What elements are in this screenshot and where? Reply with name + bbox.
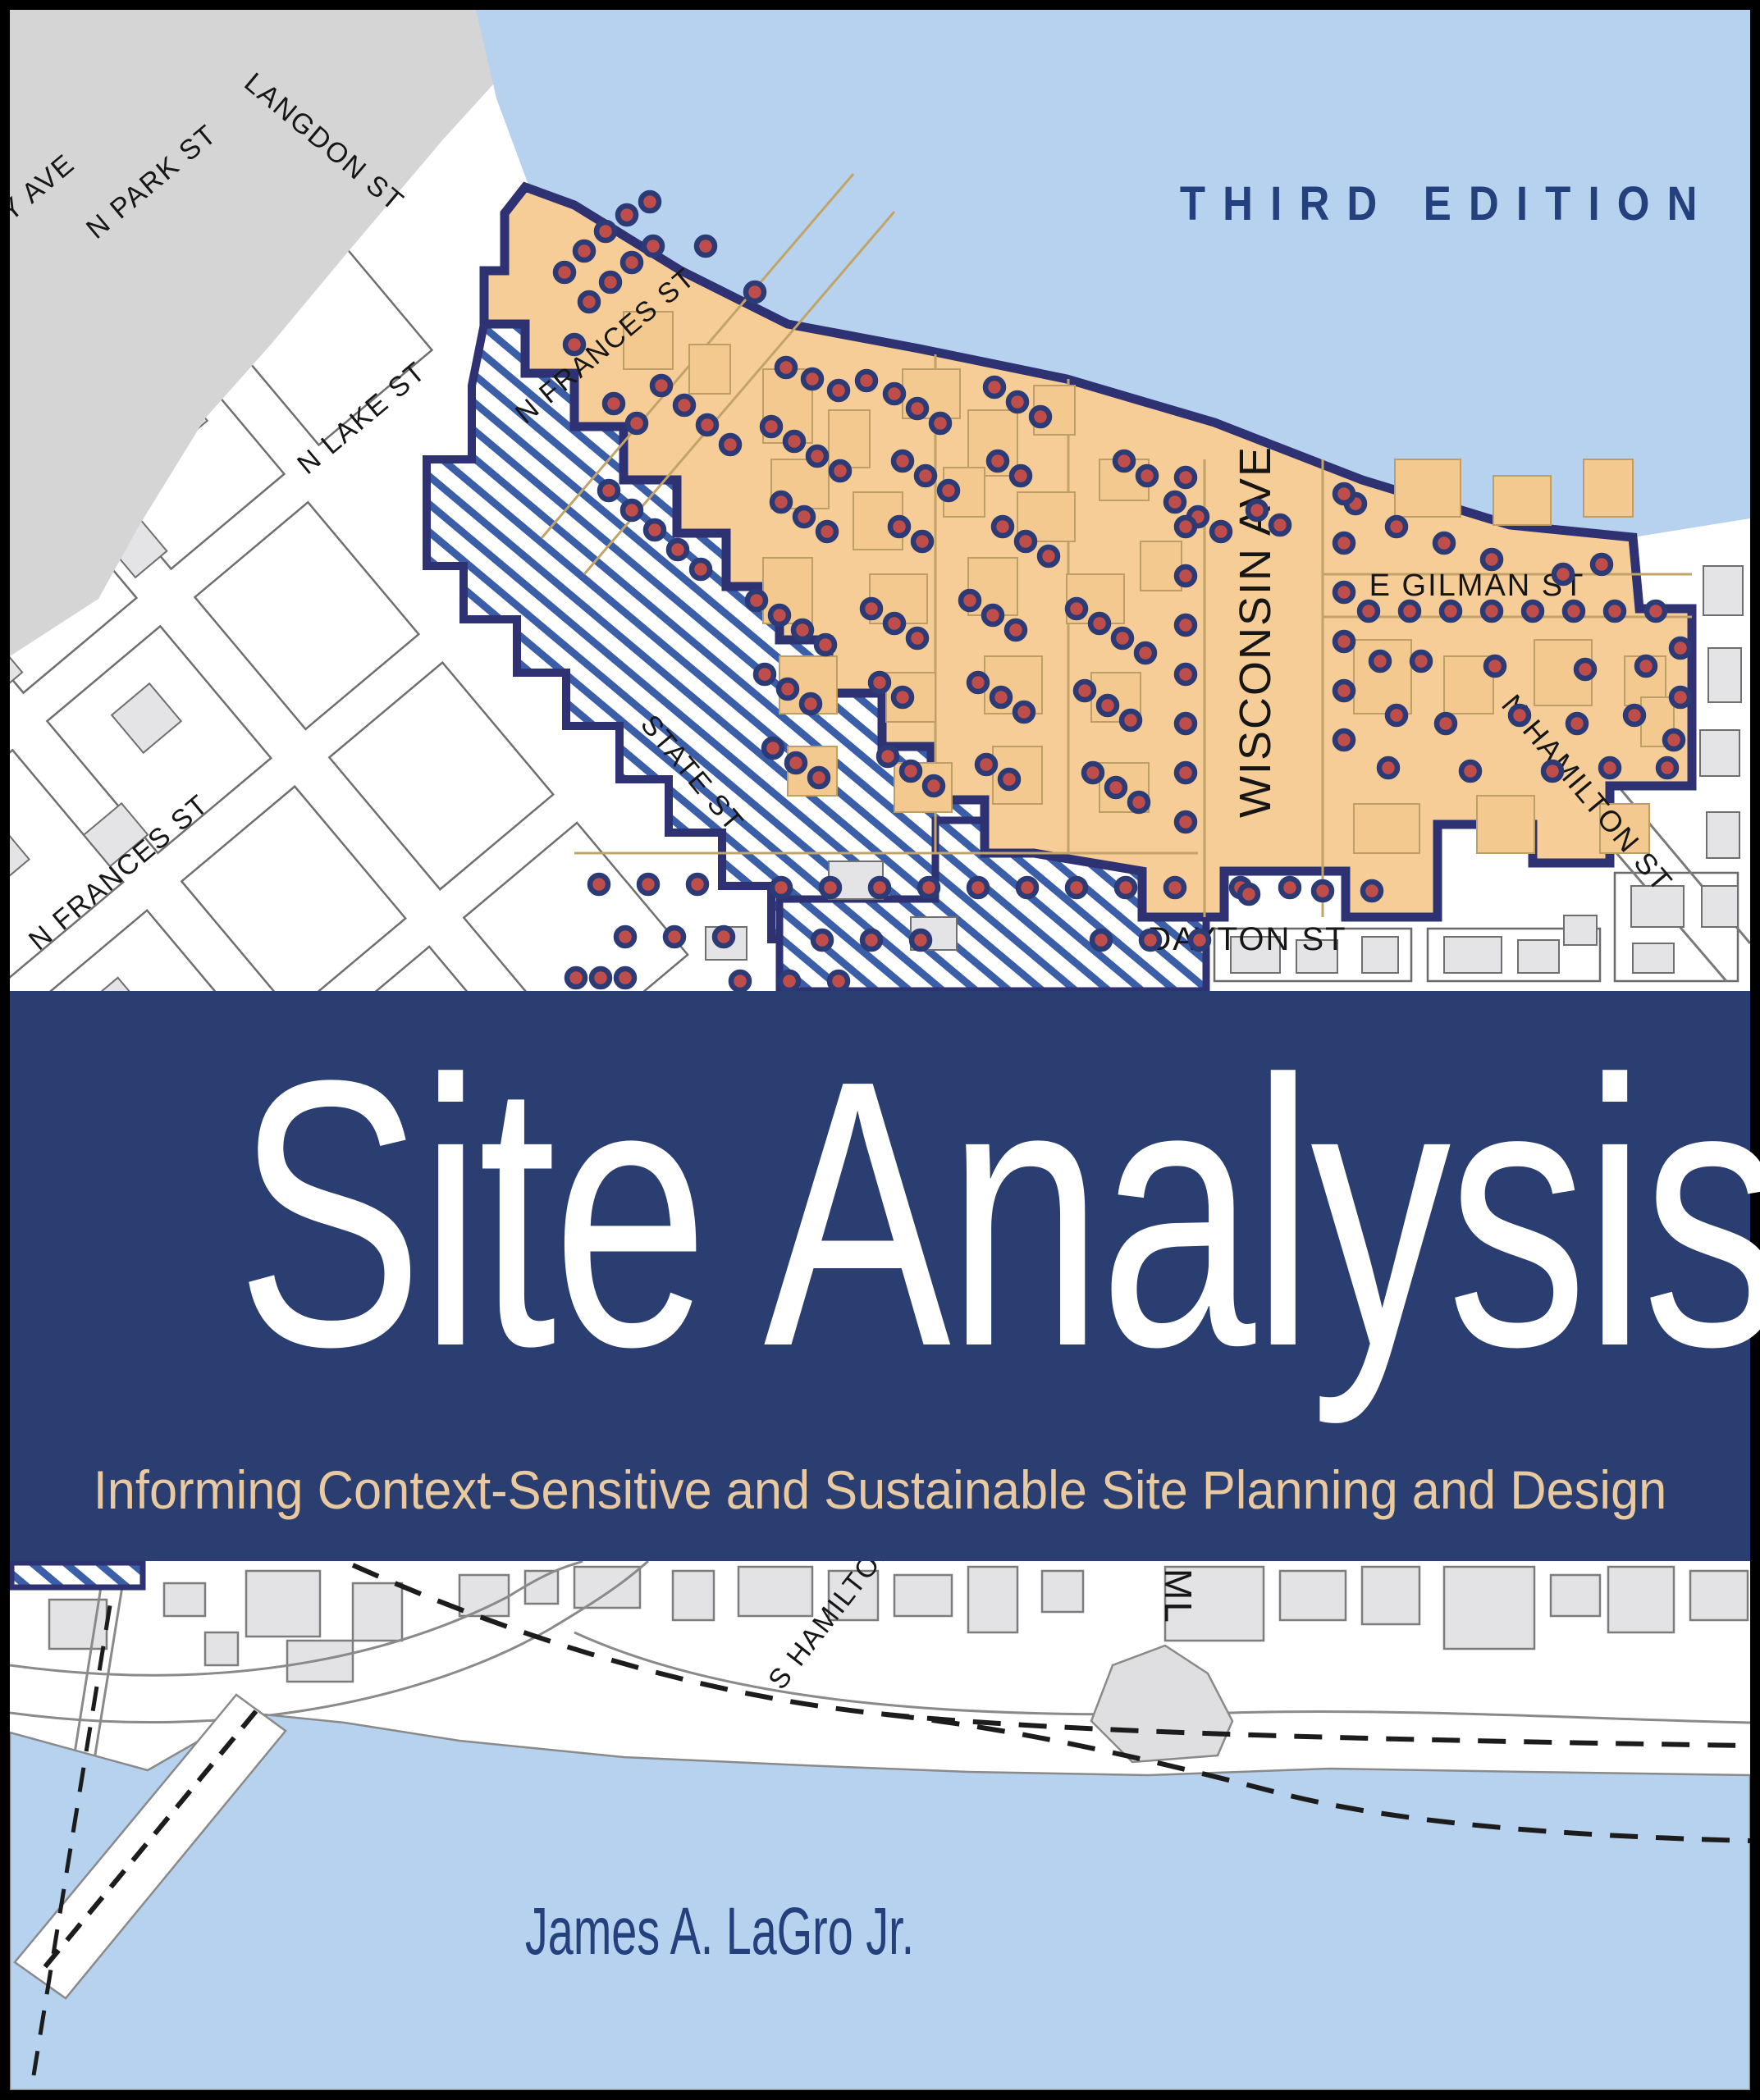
hatched-fragment: [11, 1563, 143, 1587]
edition-label: THIRD EDITION: [1180, 176, 1715, 231]
book-title: Site Analysis: [236, 1024, 1525, 1403]
lower-map: S HAMILTON ST ML: [10, 1561, 1750, 2090]
street-label-ml: ML: [1157, 1568, 1200, 1624]
book-subtitle: Informing Context-Sensitive and Sustaina…: [71, 1459, 1689, 1521]
street-label-dayton-st: DAYTON ST: [1147, 921, 1346, 957]
book-cover: ITY AVE N PARK ST LANGDON ST N LAKE ST N…: [0, 0, 1760, 2100]
title-band: Site Analysis Informing Context-Sensitiv…: [10, 991, 1750, 1561]
author-name: James A. LaGro Jr.: [237, 1893, 1202, 1970]
upper-map: ITY AVE N PARK ST LANGDON ST N LAKE ST N…: [10, 10, 1750, 991]
